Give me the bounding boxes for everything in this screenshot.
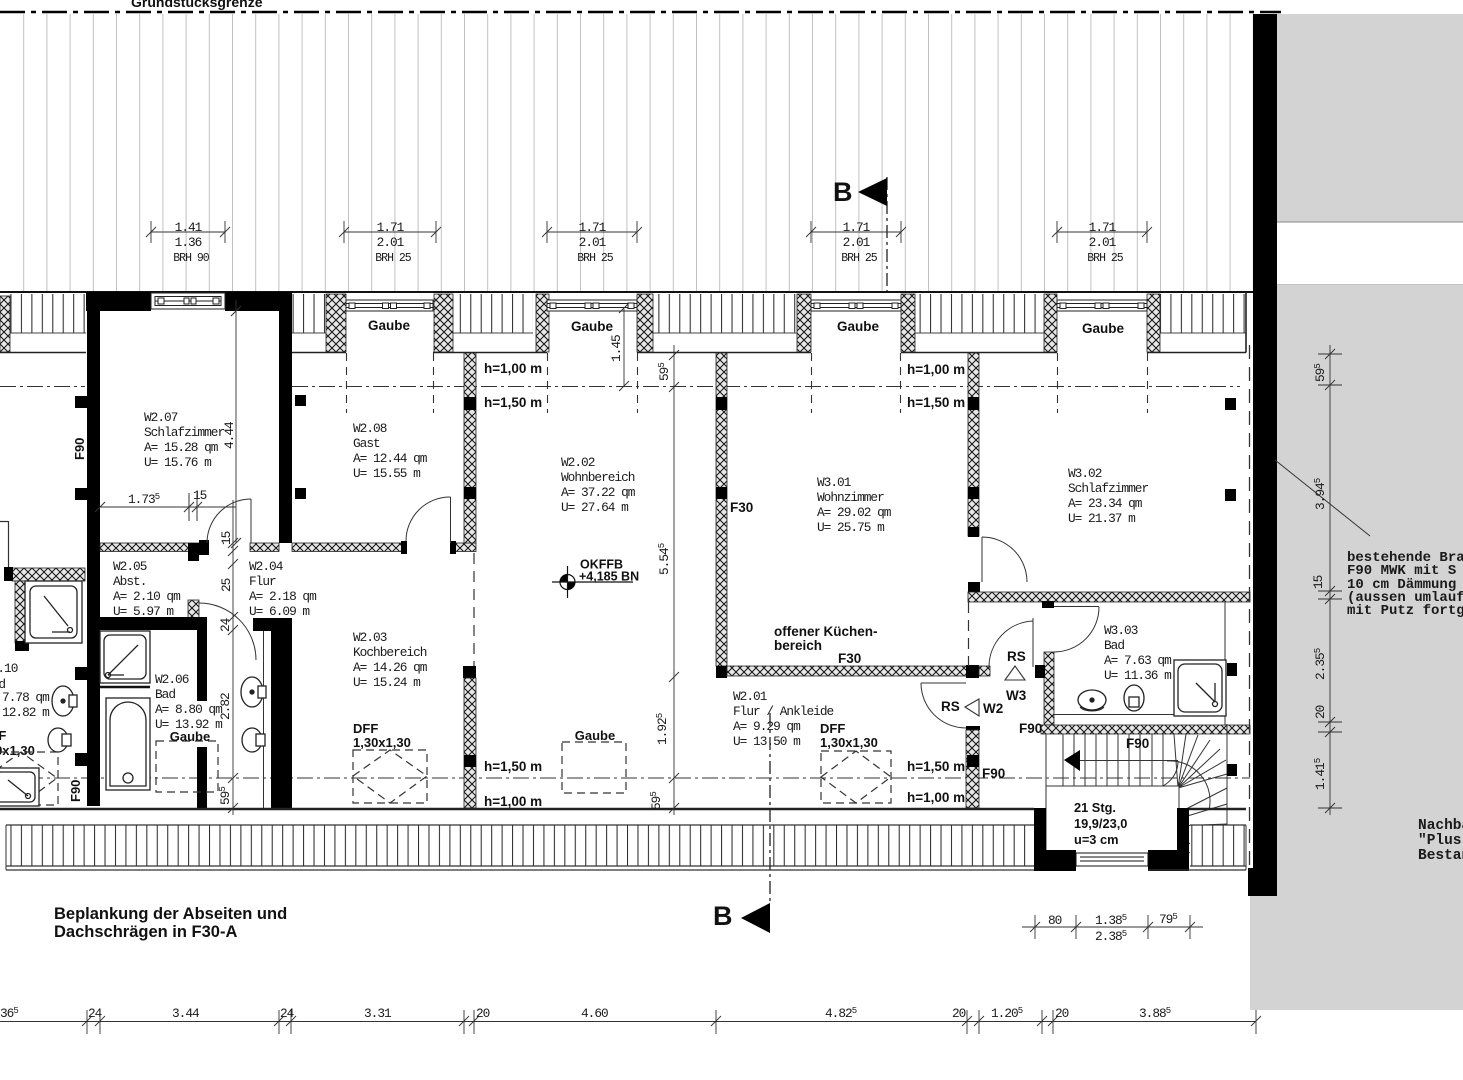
- svg-text:1,30x1,30: 1,30x1,30: [0, 743, 35, 758]
- svg-text:A= 15.28 qm: A= 15.28 qm: [144, 440, 219, 455]
- svg-text:A= 7.78 qm: A= 7.78 qm: [0, 690, 50, 705]
- svg-text:Flur / Ankleide: Flur / Ankleide: [733, 704, 834, 719]
- svg-text:+4,185 BN: +4,185 BN: [579, 570, 639, 584]
- svg-text:U= 25.75 m: U= 25.75 m: [817, 520, 885, 535]
- svg-text:mit Putz fortgef: mit Putz fortgef: [1347, 603, 1463, 619]
- svg-text:DFF: DFF: [820, 721, 845, 736]
- svg-text:W3.02: W3.02: [1068, 466, 1102, 481]
- svg-text:15: 15: [1311, 575, 1326, 589]
- svg-text:3.31: 3.31: [364, 1006, 392, 1021]
- svg-text:A= 12.44 qm: A= 12.44 qm: [353, 451, 428, 466]
- svg-text:U= 15.55 m: U= 15.55 m: [353, 466, 421, 481]
- svg-text:Bad: Bad: [155, 687, 175, 702]
- svg-text:A= 37.22 qm: A= 37.22 qm: [561, 485, 636, 500]
- svg-text:1.71: 1.71: [1089, 220, 1117, 235]
- svg-text:20: 20: [476, 1006, 490, 1021]
- svg-text:24: 24: [280, 1006, 295, 1021]
- svg-text:BRH 90: BRH 90: [173, 252, 210, 265]
- svg-text:B: B: [713, 901, 733, 931]
- svg-text:20: 20: [1055, 1006, 1069, 1021]
- svg-text:F90: F90: [1019, 721, 1042, 736]
- svg-text:4.44: 4.44: [222, 421, 237, 449]
- svg-text:h=1,50 m: h=1,50 m: [907, 759, 965, 774]
- svg-text:U= 6.09 m: U= 6.09 m: [249, 604, 310, 619]
- svg-text:A= 2.18 qm: A= 2.18 qm: [249, 589, 317, 604]
- svg-text:2.01: 2.01: [579, 235, 607, 250]
- svg-text:2.01: 2.01: [843, 235, 871, 250]
- svg-text:A= 7.63 qm: A= 7.63 qm: [1104, 653, 1172, 668]
- svg-text:1.71: 1.71: [579, 220, 607, 235]
- svg-text:21 Stg.: 21 Stg.: [1074, 800, 1116, 815]
- svg-text:15: 15: [193, 488, 207, 503]
- svg-text:W3: W3: [1006, 688, 1027, 703]
- svg-text:Schlafzimmer: Schlafzimmer: [144, 425, 224, 440]
- svg-text:BRH 25: BRH 25: [1087, 252, 1124, 265]
- svg-text:Nachbar: Nachbar: [1418, 818, 1463, 834]
- svg-text:offener Küchen-: offener Küchen-: [774, 624, 878, 639]
- svg-text:Gast: Gast: [353, 436, 380, 451]
- svg-text:F90: F90: [1126, 736, 1149, 751]
- svg-text:1,30x1,30: 1,30x1,30: [820, 735, 878, 750]
- svg-text:W2.08: W2.08: [353, 421, 387, 436]
- svg-text:DFF: DFF: [0, 728, 6, 743]
- svg-text:20: 20: [1313, 705, 1328, 719]
- svg-text:2.01: 2.01: [1089, 235, 1117, 250]
- svg-text:3.44: 3.44: [172, 1006, 200, 1021]
- svg-text:1.36: 1.36: [175, 235, 202, 250]
- svg-text:U= 11.36 m: U= 11.36 m: [1104, 668, 1172, 683]
- svg-text:Bestand: Bestand: [1418, 848, 1463, 864]
- svg-text:Gaube: Gaube: [837, 319, 880, 334]
- svg-text:RS: RS: [941, 699, 960, 714]
- svg-text:1.45: 1.45: [609, 335, 624, 362]
- svg-text:U= 12.82 m: U= 12.82 m: [0, 705, 50, 720]
- svg-text:W2: W2: [983, 701, 1003, 716]
- svg-text:W2.04: W2.04: [249, 559, 284, 574]
- svg-text:U= 5.97 m: U= 5.97 m: [113, 604, 174, 619]
- svg-text:1,30x1,30: 1,30x1,30: [353, 735, 411, 750]
- svg-text:Beplankung der Abseiten und: Beplankung der Abseiten und: [54, 905, 287, 923]
- svg-text:F90: F90: [68, 780, 83, 802]
- svg-text:A= 8.80 qm: A= 8.80 qm: [155, 702, 223, 717]
- svg-text:1.71: 1.71: [843, 220, 871, 235]
- svg-text:F30: F30: [730, 500, 753, 515]
- svg-text:24: 24: [88, 1006, 103, 1021]
- svg-text:BRH 25: BRH 25: [375, 252, 412, 265]
- svg-text:h=1,00 m: h=1,00 m: [907, 790, 965, 805]
- svg-text:1.71: 1.71: [377, 220, 405, 235]
- svg-text:RS: RS: [1007, 649, 1026, 664]
- svg-text:2.82: 2.82: [218, 693, 233, 720]
- svg-text:1.41: 1.41: [175, 220, 203, 235]
- svg-text:A= 14.26 qm: A= 14.26 qm: [353, 660, 428, 675]
- svg-text:2.01: 2.01: [377, 235, 405, 250]
- svg-text:Gaube: Gaube: [571, 319, 614, 334]
- svg-text:A= 29.02 qm: A= 29.02 qm: [817, 505, 892, 520]
- svg-text:20: 20: [952, 1006, 966, 1021]
- svg-text:19,9/23,0: 19,9/23,0: [1074, 816, 1127, 831]
- svg-text:W2.02: W2.02: [561, 455, 595, 470]
- svg-text:DFF: DFF: [353, 721, 378, 736]
- svg-text:Abst.: Abst.: [113, 574, 146, 589]
- svg-text:h=1,00 m: h=1,00 m: [907, 362, 965, 377]
- svg-text:B: B: [833, 177, 853, 207]
- svg-text:W2.01: W2.01: [733, 689, 768, 704]
- svg-text:25: 25: [219, 578, 234, 592]
- svg-text:U= 21.37 m: U= 21.37 m: [1068, 511, 1136, 526]
- svg-text:Gaube: Gaube: [368, 318, 411, 333]
- svg-text:BRH 25: BRH 25: [577, 252, 614, 265]
- svg-text:U= 27.64 m: U= 27.64 m: [561, 500, 629, 515]
- svg-text:W2.10: W2.10: [0, 661, 18, 676]
- svg-text:W2.05: W2.05: [113, 559, 147, 574]
- svg-text:U= 15.24 m: U= 15.24 m: [353, 675, 421, 690]
- svg-text:Dachschrägen in F30-A: Dachschrägen in F30-A: [54, 923, 237, 941]
- svg-text:u=3 cm: u=3 cm: [1074, 832, 1118, 847]
- svg-text:F90: F90: [72, 438, 87, 460]
- svg-text:4.60: 4.60: [581, 1006, 608, 1021]
- svg-text:24: 24: [218, 617, 233, 632]
- svg-text:U= 15.76 m: U= 15.76 m: [144, 455, 212, 470]
- svg-text:h=1,50 m: h=1,50 m: [484, 395, 542, 410]
- svg-text:W2.03: W2.03: [353, 630, 387, 645]
- svg-text:h=1,50 m: h=1,50 m: [907, 395, 965, 410]
- svg-text:80: 80: [1048, 913, 1062, 928]
- svg-text:Gaube: Gaube: [170, 729, 210, 744]
- svg-text:Gaube: Gaube: [575, 728, 615, 743]
- svg-text:A= 23.34 qm: A= 23.34 qm: [1068, 496, 1143, 511]
- svg-text:U= 13.50 m: U= 13.50 m: [733, 734, 801, 749]
- svg-text:F90: F90: [982, 766, 1005, 781]
- svg-text:Flur: Flur: [249, 574, 276, 589]
- svg-text:h=1,00 m: h=1,00 m: [484, 361, 542, 376]
- svg-text:W2.06: W2.06: [155, 672, 189, 687]
- svg-text:Wohnbereich: Wohnbereich: [561, 470, 635, 485]
- svg-text:A= 9.29 qm: A= 9.29 qm: [733, 719, 801, 734]
- svg-text:Grundstücksgrenze: Grundstücksgrenze: [131, 0, 263, 10]
- svg-text:15: 15: [219, 531, 234, 545]
- svg-text:Kochbereich: Kochbereich: [353, 645, 427, 660]
- svg-text:"Plus": "Plus": [1418, 833, 1463, 849]
- svg-text:W3.01: W3.01: [817, 475, 852, 490]
- svg-text:BRH 25: BRH 25: [841, 252, 878, 265]
- svg-text:F30: F30: [838, 651, 861, 666]
- svg-text:h=1,50 m: h=1,50 m: [484, 759, 542, 774]
- svg-text:Bad: Bad: [1104, 638, 1124, 653]
- svg-text:A= 2.10 qm: A= 2.10 qm: [113, 589, 181, 604]
- svg-text:h=1,00 m: h=1,00 m: [484, 794, 542, 809]
- svg-text:Wohnzimmer: Wohnzimmer: [817, 490, 884, 505]
- svg-text:Schlafzimmer: Schlafzimmer: [1068, 481, 1148, 496]
- svg-text:Gaube: Gaube: [1082, 321, 1125, 336]
- svg-text:W2.07: W2.07: [144, 410, 178, 425]
- svg-text:W3.03: W3.03: [1104, 623, 1138, 638]
- svg-text:bereich: bereich: [774, 638, 822, 653]
